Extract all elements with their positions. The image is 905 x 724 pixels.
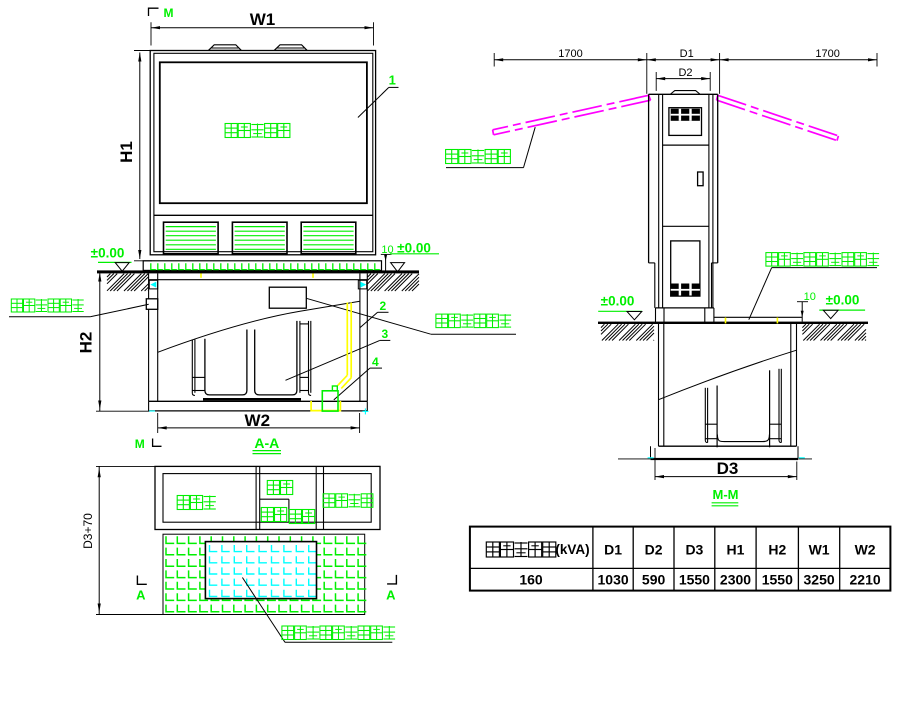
svg-text:1030: 1030	[598, 572, 629, 588]
svg-text:3: 3	[381, 327, 388, 341]
svg-text:590: 590	[642, 572, 666, 588]
svg-text:2300: 2300	[720, 572, 751, 588]
svg-text:1700: 1700	[815, 48, 839, 60]
svg-text:(kVA): (kVA)	[555, 542, 589, 557]
svg-text:2210: 2210	[850, 572, 881, 588]
svg-text:H2: H2	[77, 332, 96, 354]
svg-text:A: A	[136, 587, 146, 602]
svg-text:A: A	[386, 587, 396, 602]
svg-text:1550: 1550	[679, 572, 710, 588]
svg-text:H2: H2	[768, 542, 786, 558]
svg-text:W2: W2	[245, 411, 271, 430]
svg-text:±0.00: ±0.00	[601, 294, 635, 309]
svg-text:W1: W1	[809, 542, 830, 558]
svg-text:W1: W1	[250, 10, 276, 29]
svg-text:D3: D3	[685, 542, 703, 558]
svg-text:D1: D1	[680, 48, 694, 60]
svg-text:1700: 1700	[558, 48, 582, 60]
svg-text:1550: 1550	[762, 572, 793, 588]
svg-text:±0.00: ±0.00	[826, 293, 860, 308]
svg-text:D3+70: D3+70	[81, 513, 95, 549]
svg-text:M: M	[135, 437, 145, 451]
svg-text:W2: W2	[855, 542, 876, 558]
svg-text:M-M: M-M	[713, 487, 739, 502]
svg-text:10: 10	[804, 291, 816, 303]
svg-text:A-A: A-A	[254, 435, 279, 451]
svg-text:160: 160	[519, 572, 543, 588]
svg-text:4: 4	[372, 355, 379, 369]
svg-text:H1: H1	[117, 141, 136, 163]
svg-text:D2: D2	[645, 542, 663, 558]
svg-text:3250: 3250	[804, 572, 835, 588]
svg-text:D2: D2	[678, 67, 692, 79]
svg-text:±0.00: ±0.00	[91, 246, 125, 261]
svg-text:H1: H1	[727, 542, 745, 558]
svg-text:2: 2	[379, 299, 386, 313]
svg-text:D3: D3	[717, 459, 739, 478]
svg-text:M: M	[164, 6, 174, 20]
svg-text:1: 1	[389, 73, 396, 88]
svg-text:D1: D1	[604, 542, 622, 558]
